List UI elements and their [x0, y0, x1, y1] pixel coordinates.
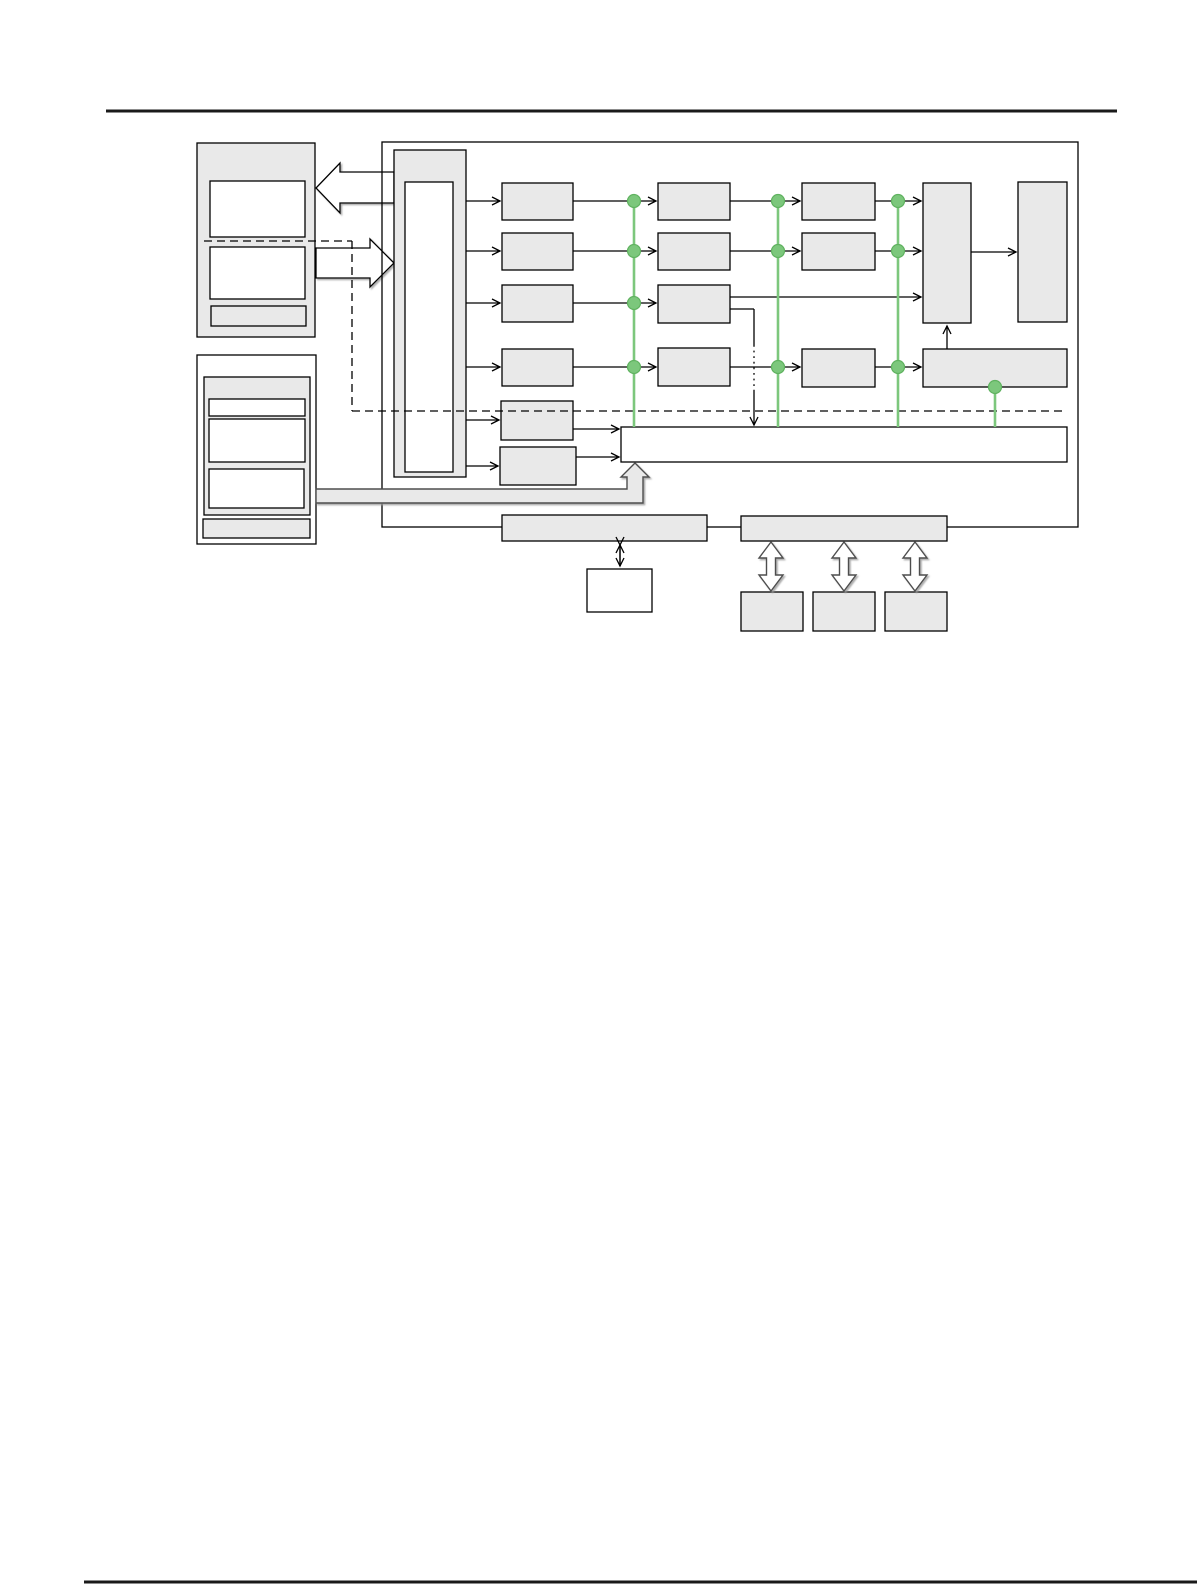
stage2-row2	[658, 233, 730, 270]
stage1-row6	[500, 447, 576, 485]
junction-dot	[772, 361, 785, 374]
left-panel-bottom-slot-c	[209, 469, 304, 508]
stage3-row4	[802, 349, 875, 387]
junction-dot	[628, 297, 641, 310]
stage1-row3	[502, 285, 573, 322]
left-panel-top-box-a	[210, 181, 305, 237]
double-arrow-c	[903, 542, 927, 591]
junction-dot	[628, 361, 641, 374]
junction-dot	[628, 245, 641, 258]
document-page	[0, 0, 1201, 1585]
stage1-row2	[502, 233, 573, 270]
port-c	[885, 592, 947, 631]
pipe-up-arrow	[316, 463, 649, 503]
stage2-row3	[658, 285, 730, 323]
left-panel-bottom-slot-b	[209, 419, 305, 462]
port-b	[813, 592, 875, 631]
stage1-row4	[502, 349, 573, 386]
collector-left	[923, 183, 971, 323]
collector-right	[1018, 182, 1067, 322]
stage1-row1	[502, 183, 573, 220]
left-panel-top-strip	[211, 306, 306, 326]
port-a	[741, 592, 803, 631]
stage3-row1	[802, 183, 875, 220]
bus-bar	[621, 427, 1067, 462]
double-arrow-a	[759, 542, 783, 591]
stage2-row4	[658, 348, 730, 386]
junction-dot	[772, 245, 785, 258]
double-arrow-b	[832, 542, 856, 591]
left-panel-bottom-strip	[203, 519, 310, 538]
stage3-row2	[802, 233, 875, 270]
left-panel-bottom-slot-a	[209, 399, 305, 416]
junction-dot	[892, 245, 905, 258]
junction-dot	[772, 195, 785, 208]
diagram-canvas	[0, 0, 1201, 1585]
stage2-row1	[658, 183, 730, 220]
io-bar-left	[502, 515, 707, 541]
memory-box	[587, 569, 652, 612]
junction-dot	[892, 361, 905, 374]
io-bar-right	[741, 516, 947, 541]
left-panel-top-box-b	[210, 247, 305, 299]
core-column-inner	[405, 182, 453, 472]
junction-dot	[989, 381, 1002, 394]
junction-dot	[628, 195, 641, 208]
junction-dot	[892, 195, 905, 208]
stage1-row5	[501, 401, 573, 440]
